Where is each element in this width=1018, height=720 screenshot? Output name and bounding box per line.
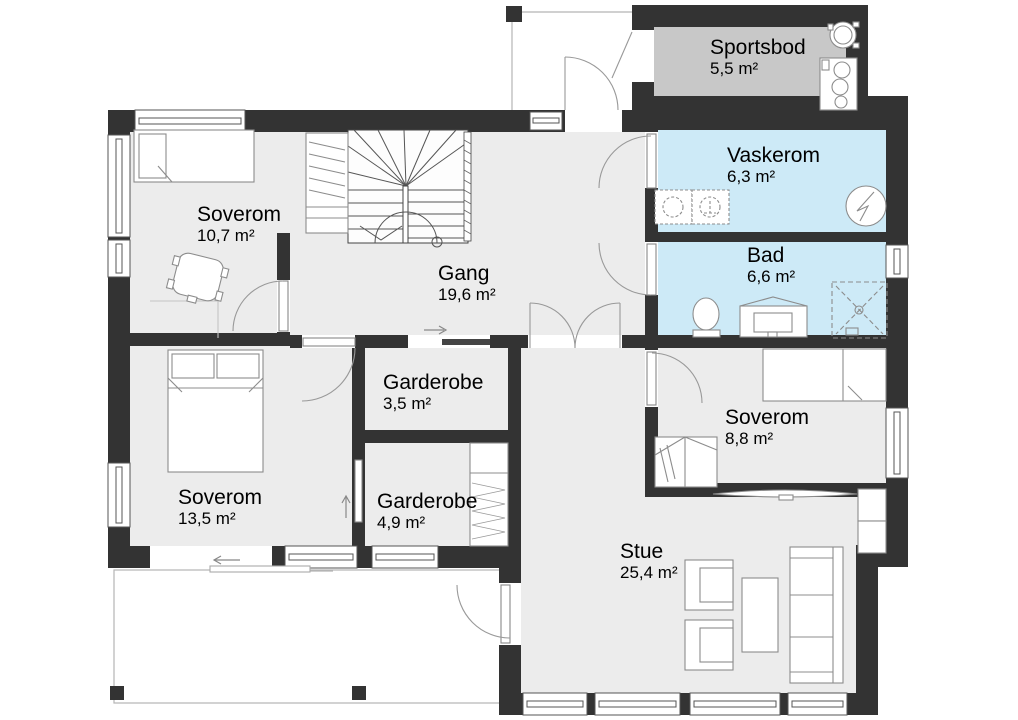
room-label-soverom-3: Soverom 8,8 m² (725, 406, 809, 448)
terrace-sliding-door (210, 566, 310, 572)
window (372, 546, 438, 568)
window (108, 240, 130, 277)
room-label-gang: Gang 19,6 m² (438, 262, 496, 304)
room-name: Vaskerom (727, 144, 820, 167)
room-name: Garderobe (377, 490, 477, 513)
coffee-table (742, 578, 778, 652)
window (285, 546, 357, 568)
room-area: 8,8 m² (725, 429, 809, 448)
porch-post (506, 6, 522, 22)
room-area: 5,5 m² (710, 59, 806, 78)
room-name: Soverom (197, 203, 281, 226)
room-name: Soverom (725, 406, 809, 429)
window (523, 693, 587, 715)
sportsbod-door (612, 32, 632, 78)
wardrobe-soverom-3 (655, 437, 717, 487)
garderobe-2-sliding-door (355, 460, 362, 522)
room-label-soverom-1: Soverom 10,7 m² (197, 203, 281, 245)
front-door (565, 57, 618, 110)
room-name: Gang (438, 262, 496, 285)
armchair (685, 620, 733, 670)
terrace-post (352, 686, 366, 700)
stairs (348, 130, 471, 247)
room-area: 6,6 m² (747, 267, 795, 286)
room-name: Sportsbod (710, 36, 806, 59)
room-label-sportsbod: Sportsbod 5,5 m² (710, 36, 806, 78)
room-area: 6,3 m² (727, 167, 820, 186)
window (108, 463, 130, 527)
room-area: 25,4 m² (620, 563, 678, 582)
room-area: 10,7 m² (197, 226, 281, 245)
terrace-post (110, 686, 124, 700)
toilet (693, 298, 720, 337)
window-sidelight (530, 112, 562, 130)
room-area: 13,5 m² (178, 509, 262, 528)
room-area: 3,5 m² (383, 394, 483, 413)
single-bed (134, 130, 254, 182)
window (108, 135, 130, 237)
armchair (685, 560, 733, 610)
room-name: Garderobe (383, 371, 483, 394)
room-name: Soverom (178, 486, 262, 509)
washing-machine (655, 190, 692, 224)
cabinet (858, 489, 886, 553)
window (135, 110, 245, 132)
room-label-stue: Stue 25,4 m² (620, 540, 678, 582)
terrace-outline (114, 570, 505, 703)
room-label-garderobe-2: Garderobe 4,9 m² (377, 490, 477, 532)
ventilation-unit (820, 58, 857, 110)
room-area: 4,9 m² (377, 513, 477, 532)
double-bed (168, 350, 263, 472)
window (690, 693, 780, 715)
room-label-vaskerom: Vaskerom 6,3 m² (727, 144, 820, 186)
wardrobe-stairs (306, 133, 348, 233)
window (788, 693, 847, 715)
window (886, 408, 908, 478)
dryer (692, 190, 729, 224)
room-name: Stue (620, 540, 678, 563)
stairs-railing (464, 132, 471, 241)
window (886, 245, 908, 278)
window (595, 693, 680, 715)
room-label-garderobe-1: Garderobe 3,5 m² (383, 371, 483, 413)
room-area: 19,6 m² (438, 285, 496, 304)
room-name: Bad (747, 244, 795, 267)
floor-plan: Sportsbod 5,5 m² Vaskerom 6,3 m² Bad 6,6… (0, 0, 1018, 720)
water-heater (846, 186, 886, 226)
room-label-soverom-2: Soverom 13,5 m² (178, 486, 262, 528)
garderobe-1-pocket-door (442, 339, 490, 345)
terrace (114, 570, 505, 703)
entrance-porch (512, 12, 632, 110)
room-label-bad: Bad 6,6 m² (747, 244, 795, 286)
single-bed-2 (763, 349, 886, 401)
sofa (790, 547, 843, 683)
